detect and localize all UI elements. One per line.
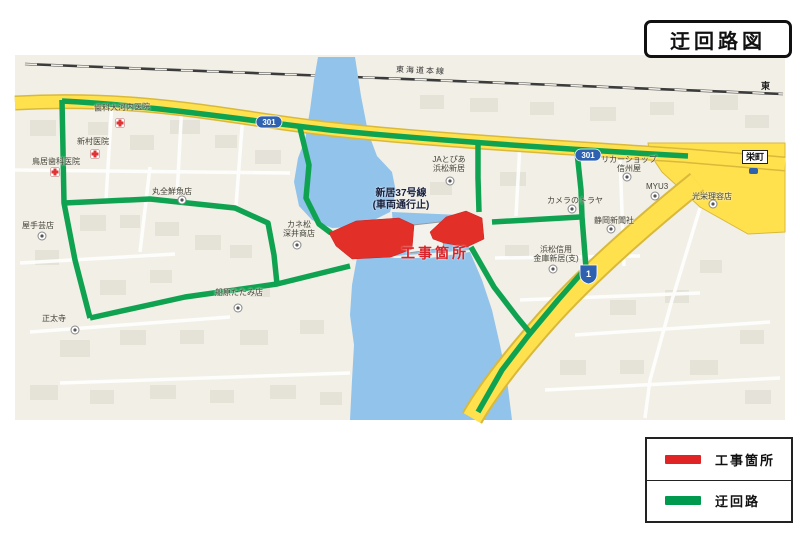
label-ja-topia: JAとぴあ 浜松新居 <box>424 155 474 173</box>
shop-icon <box>446 177 454 185</box>
hospital-icon <box>51 168 60 177</box>
label-koei-barber: 光栄理容店 <box>692 192 732 201</box>
shop-icon <box>549 265 557 273</box>
label-shizuoka-shimbun: 静岡新聞社 <box>594 216 634 225</box>
shop-icon <box>234 304 242 312</box>
shop-icon <box>71 326 79 334</box>
label-maruzen-fish: 丸全鮮魚店 <box>152 187 192 196</box>
svg-text:301: 301 <box>581 151 595 160</box>
label-east: 東 <box>761 79 770 92</box>
shop-icon <box>38 232 46 240</box>
label-sakaemachi-junction: 栄町 <box>742 150 768 164</box>
page-title: 迂回路図 <box>644 20 792 58</box>
shop-icon <box>651 192 659 200</box>
label-kanematsu-fukai: カネ松 深井商店 <box>276 220 322 238</box>
label-myu3: MYU3 <box>646 182 668 191</box>
detour-swatch <box>665 496 701 505</box>
label-handicraft-shop: 屋手芸店 <box>22 221 54 230</box>
legend-detour-label: 迂回路 <box>715 491 760 510</box>
label-funahara-tatami: 船原たたみ店 <box>215 288 263 297</box>
shop-icon <box>709 200 717 208</box>
construction-site-label: 工事箇所 <box>401 243 469 263</box>
hospital-icon <box>91 150 100 159</box>
shop-icon <box>623 173 631 181</box>
closure-note: 新居37号線(車両通行止) <box>360 188 442 211</box>
legend-detour-row: 迂回路 <box>647 480 791 522</box>
label-shotaiji-temple: 正太寺 <box>42 314 66 323</box>
shop-icon <box>293 241 301 249</box>
route-301-shield-right: 301 <box>575 149 601 161</box>
closure-road-name: 新居37号線 <box>375 188 426 199</box>
legend-construction-label: 工事箇所 <box>715 450 775 469</box>
label-camera-toraya: カメラのトラヤ <box>547 196 603 205</box>
label-shinmura-clinic: 新村医院 <box>77 137 109 146</box>
shop-icon <box>178 196 186 204</box>
label-torii-dental: 鳥居歯科医院 <box>32 157 80 166</box>
page: 301 301 1 <box>0 0 800 538</box>
label-liquor-shop: リカーショップ 信州屋 <box>600 155 658 173</box>
small-shield-icon <box>749 168 758 174</box>
hospital-icon <box>116 119 125 128</box>
construction-swatch <box>665 455 701 464</box>
legend: 工事箇所 迂回路 <box>645 437 793 523</box>
label-tokaido-line: 東海道本線 <box>396 64 446 77</box>
shop-icon <box>568 205 576 213</box>
svg-text:301: 301 <box>262 118 276 127</box>
label-hamamatsu-shinkin: 浜松信用 金庫新居(支) <box>528 245 584 263</box>
route-1-shield: 1 <box>580 265 597 284</box>
route-301-shield-left: 301 <box>256 116 282 128</box>
legend-construction-row: 工事箇所 <box>647 439 791 480</box>
svg-text:1: 1 <box>586 269 591 279</box>
shop-icon <box>607 225 615 233</box>
closure-status: (車両通行止) <box>373 200 430 211</box>
